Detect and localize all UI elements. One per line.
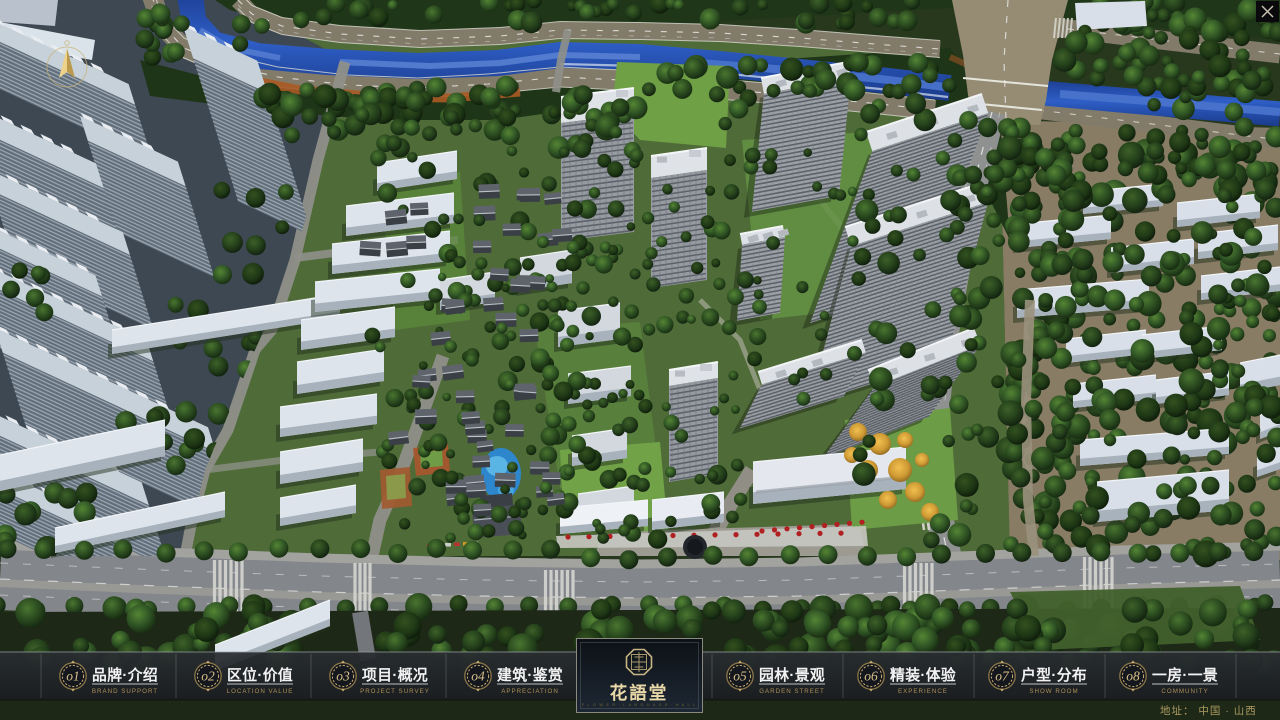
svg-text:园林·景观: 园林·景观 — [759, 666, 825, 684]
svg-text:GARDEN STREET: GARDEN STREET — [759, 688, 825, 695]
svg-text:o1: o1 — [66, 669, 80, 684]
svg-text:PROJECT SURVEY: PROJECT SURVEY — [360, 688, 430, 695]
svg-text:精装·体验: 精装·体验 — [890, 666, 956, 684]
svg-text:建筑·鉴赏: 建筑·鉴赏 — [497, 666, 563, 684]
svg-text:一房·一景: 一房·一景 — [1152, 666, 1218, 684]
svg-text:BRAND SUPPORT: BRAND SUPPORT — [92, 688, 158, 695]
svg-text:F L O W E R · L A N G U A G E: F L O W E R · L A N G U A G E · H A L L — [582, 703, 697, 707]
svg-text:o7: o7 — [995, 669, 1010, 684]
svg-text:地址： 中国 · 山西: 地址： 中国 · 山西 — [1160, 704, 1257, 717]
svg-text:项目·概况: 项目·概况 — [362, 666, 428, 684]
svg-text:EXPERIENCE: EXPERIENCE — [898, 688, 948, 695]
svg-text:o3: o3 — [336, 669, 350, 684]
svg-text:品牌·介绍: 品牌·介绍 — [92, 666, 158, 684]
svg-text:o6: o6 — [864, 669, 878, 684]
svg-text:花語堂: 花語堂 — [610, 683, 669, 703]
svg-text:o5: o5 — [733, 669, 747, 684]
svg-text:o8: o8 — [1126, 669, 1140, 684]
svg-text:区位·价值: 区位·价值 — [227, 666, 293, 684]
svg-text:户型·分布: 户型·分布 — [1021, 666, 1087, 684]
svg-text:LOCATION VALUE: LOCATION VALUE — [227, 688, 294, 695]
svg-text:o2: o2 — [201, 669, 215, 684]
svg-text:o4: o4 — [471, 669, 485, 684]
svg-text:APPRECIATION: APPRECIATION — [501, 688, 559, 695]
svg-text:COMMUNITY: COMMUNITY — [1161, 688, 1208, 695]
svg-text:SHOW ROOM: SHOW ROOM — [1029, 688, 1078, 695]
